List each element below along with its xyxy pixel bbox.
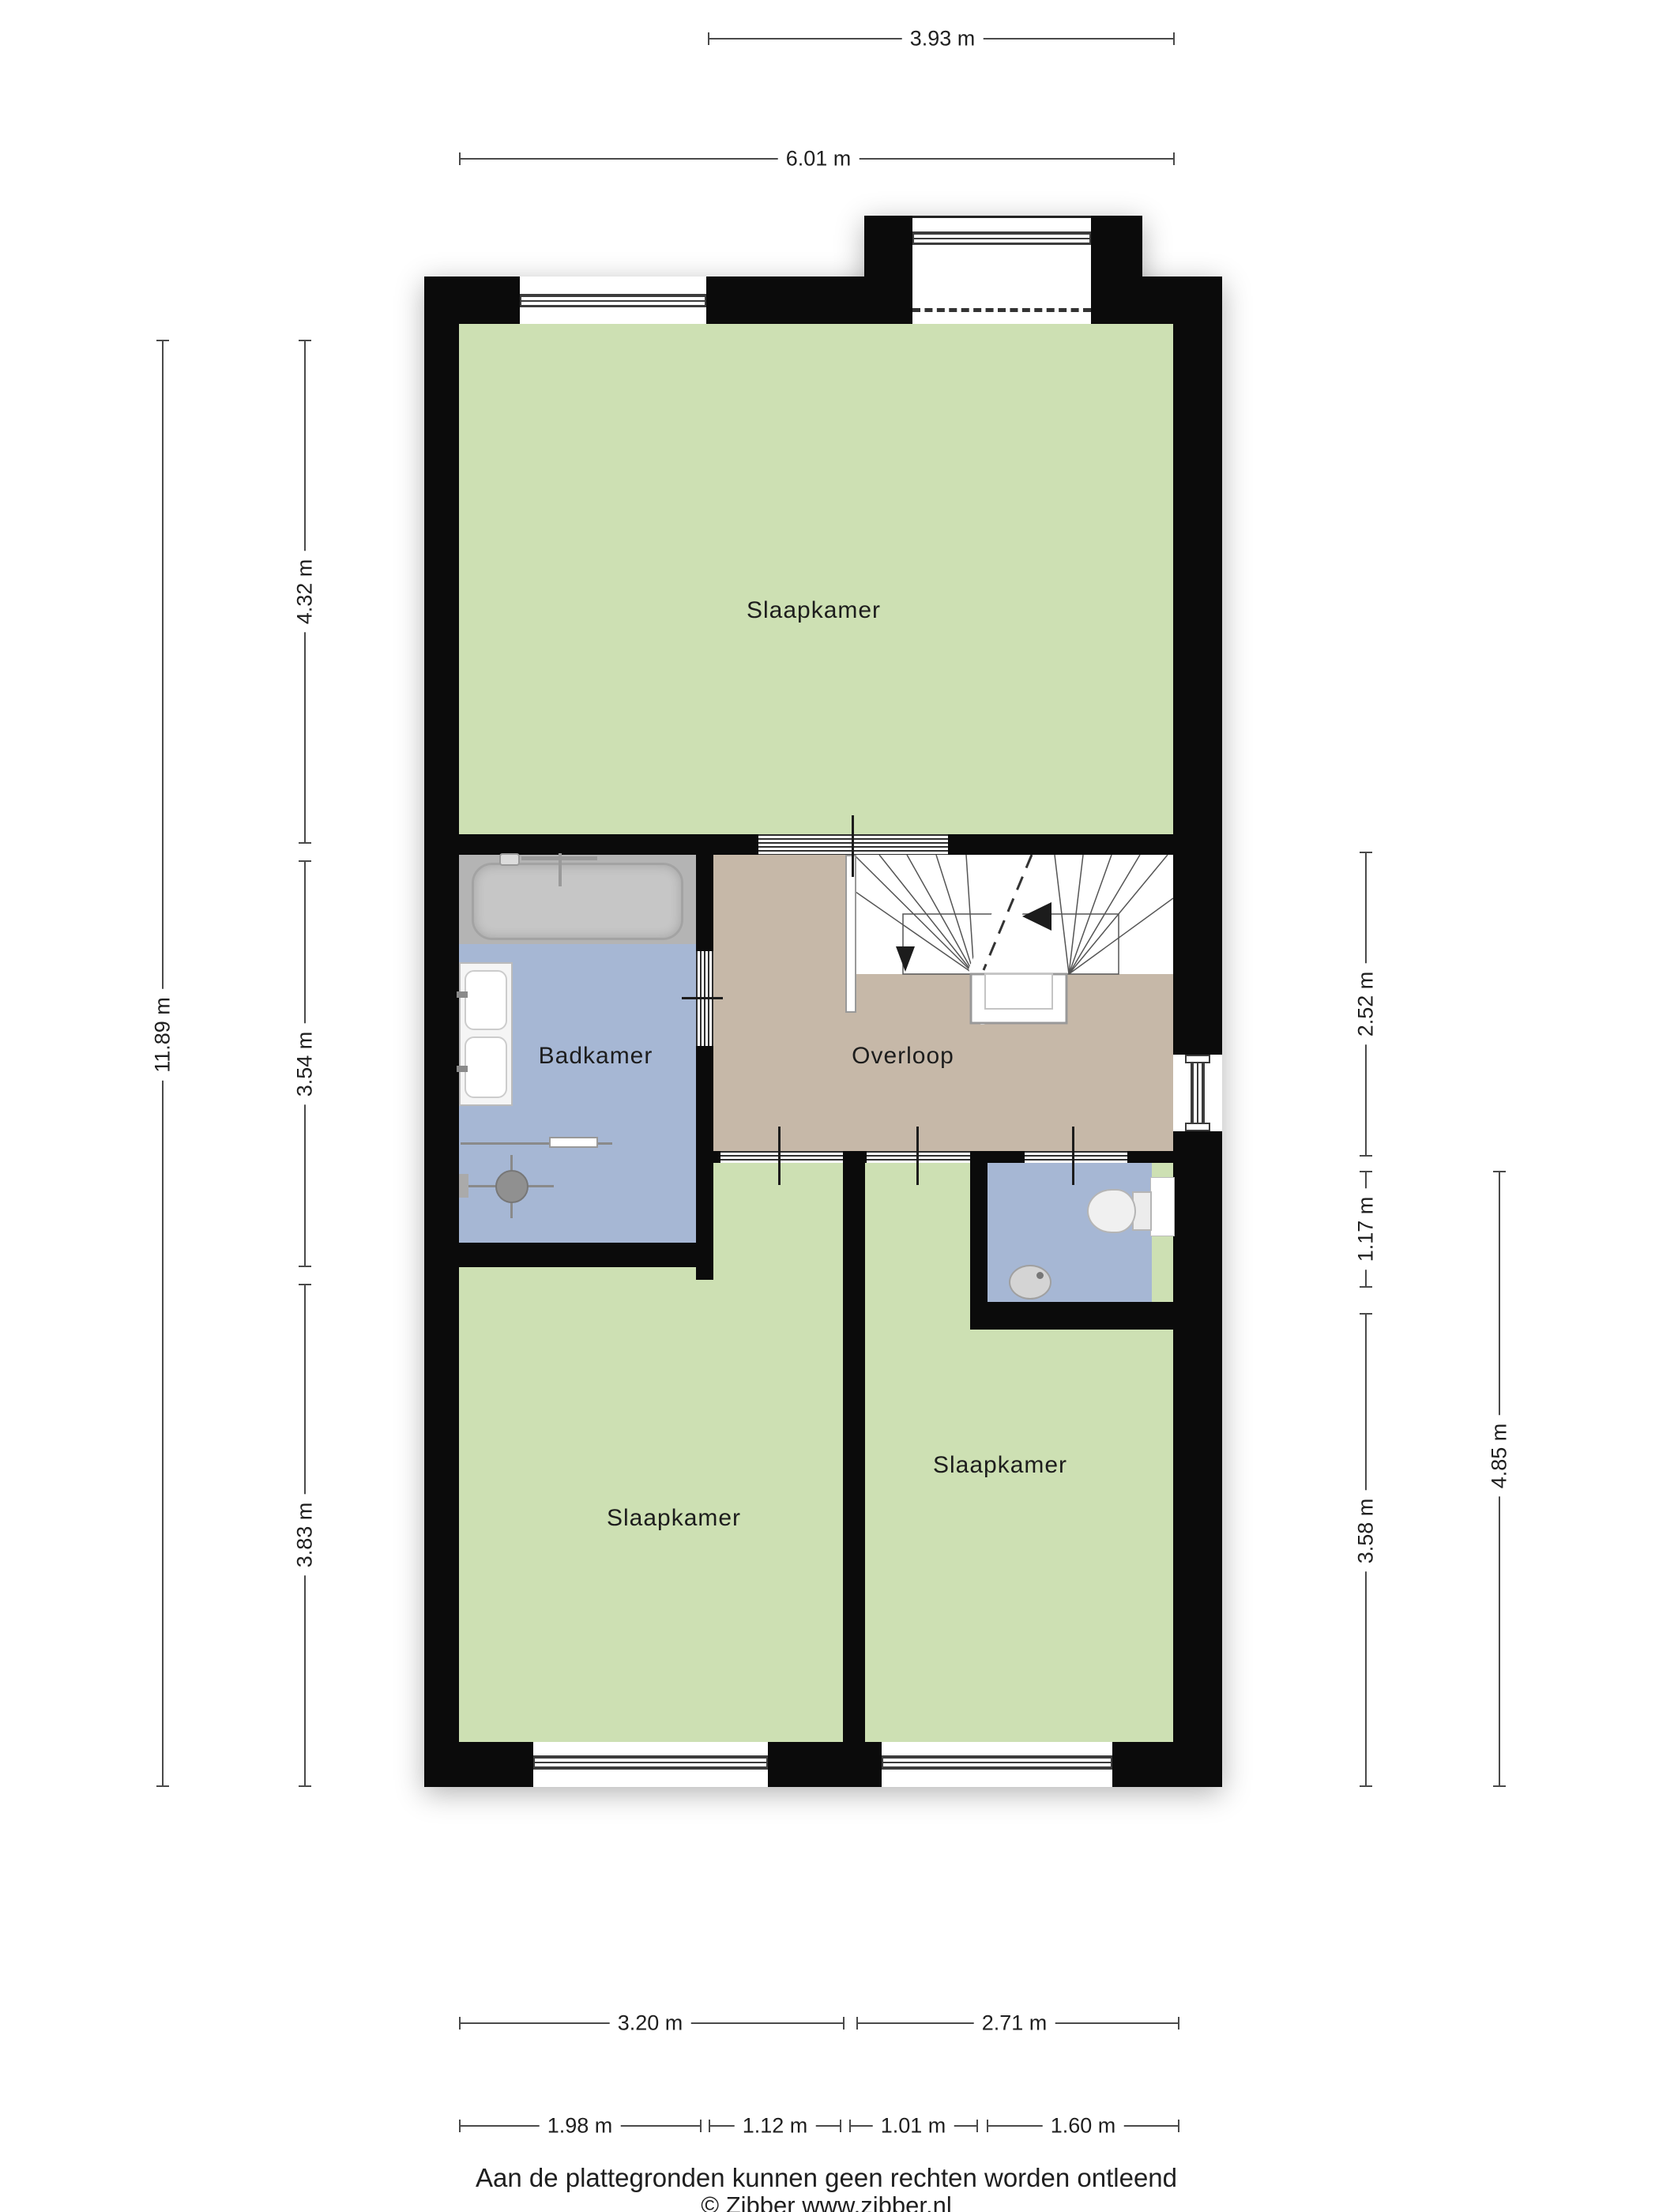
door-toilet — [1025, 1151, 1127, 1163]
dormer-top-edge — [912, 216, 1091, 218]
window-right — [1191, 1055, 1205, 1131]
dim-label: 2.52 m — [1352, 964, 1380, 1045]
label-landing: Overloop — [852, 1043, 954, 1070]
washbasin-faucet-2 — [457, 1066, 468, 1072]
dim-label: 1.12 m — [735, 2112, 816, 2140]
dim-label: 11.89 m — [149, 989, 177, 1081]
dim-bottom-112: 1.12 m — [709, 2125, 841, 2127]
label-bathroom: Badkamer — [539, 1043, 653, 1070]
door-tick-bathroom — [682, 997, 723, 999]
dim-bottom-271: 2.71 m — [856, 2022, 1179, 2024]
dim-right-117: 1.17 m — [1365, 1171, 1367, 1288]
wall-bottom-c — [1112, 1742, 1222, 1787]
dim-left-432: 4.32 m — [304, 340, 306, 844]
toilet-bowl — [1087, 1189, 1136, 1233]
window-bottom-right — [882, 1755, 1112, 1770]
dim-bottom-320: 3.20 m — [459, 2022, 845, 2024]
dormer-threshold-dashed — [912, 308, 1091, 324]
dim-right-358: 3.58 m — [1365, 1313, 1367, 1787]
wall-landing-bottom-c — [970, 1151, 1025, 1163]
dim-bottom-198: 1.98 m — [459, 2125, 702, 2127]
dim-left-383: 3.83 m — [304, 1284, 306, 1787]
wall-top-b — [706, 276, 864, 324]
bathtub-soap-dish — [499, 853, 520, 866]
room-bedroom-top — [459, 324, 1173, 834]
washbasin-faucet-1 — [457, 991, 468, 998]
washbasin-2 — [465, 1036, 507, 1098]
door-tick-bedroom-left — [778, 1127, 781, 1185]
dim-right-252: 2.52 m — [1365, 852, 1367, 1157]
dim-top-393: 3.93 m — [708, 38, 1175, 39]
window-right-sill-top — [1185, 1055, 1210, 1063]
wall-landing-bottom-a — [713, 1151, 720, 1163]
wall-bottom-a — [424, 1742, 533, 1787]
door-tick-bedroom-right — [916, 1127, 919, 1185]
label-bedroom-left: Slaapkamer — [607, 1505, 741, 1532]
wall-bedroom-divider — [843, 1163, 865, 1742]
door-tick-toilet — [1072, 1127, 1074, 1185]
dim-left-1189: 11.89 m — [162, 340, 164, 1787]
window-right-sill-bottom — [1185, 1123, 1210, 1131]
label-bedroom-right: Slaapkamer — [933, 1452, 1067, 1479]
dim-label: 4.32 m — [292, 551, 319, 633]
dim-left-354: 3.54 m — [304, 860, 306, 1267]
dim-label: 4.85 m — [1486, 1416, 1514, 1497]
footer-copyright: © Zibber www.zibber.nl — [701, 2191, 951, 2212]
dim-bottom-101: 1.01 m — [849, 2125, 978, 2127]
dormer-window — [912, 231, 1091, 245]
dim-label: 3.20 m — [610, 2010, 691, 2037]
towel-rail-bracket — [549, 1137, 598, 1148]
toilet-sink-faucet — [1036, 1272, 1044, 1279]
window-top — [520, 294, 706, 307]
wall-bottom-b — [768, 1742, 882, 1787]
door-bedroom-left — [720, 1151, 843, 1163]
dim-right-485: 4.85 m — [1499, 1171, 1500, 1787]
dim-label: 1.17 m — [1352, 1189, 1380, 1270]
wall-top-a — [424, 276, 520, 324]
wall-bathroom-bottom — [424, 1243, 713, 1267]
stair-railing — [845, 855, 856, 1013]
dim-label: 1.98 m — [540, 2112, 621, 2140]
wall-landing-bottom-b — [843, 1151, 867, 1163]
dim-label: 3.93 m — [902, 25, 984, 53]
wall-landing-bottom-d — [1127, 1151, 1173, 1163]
wall-toilet-bottom — [970, 1302, 1173, 1330]
toilet-door-leaf — [1150, 1177, 1175, 1236]
dim-label: 3.54 m — [292, 1024, 319, 1105]
wall-bathroom-landing — [696, 855, 713, 1280]
toilet-sink — [1009, 1265, 1051, 1300]
wall-left — [424, 276, 459, 1787]
dormer-wall-right — [1091, 216, 1142, 324]
washbasin-1 — [465, 970, 507, 1030]
door-tick-bedroom-top — [852, 815, 854, 877]
dim-label: 3.58 m — [1352, 1491, 1380, 1572]
shower-head — [495, 1170, 529, 1203]
wall-right — [1173, 276, 1222, 1787]
window-bottom-left — [533, 1755, 768, 1770]
dim-bottom-160: 1.60 m — [987, 2125, 1179, 2127]
dim-label: 1.01 m — [873, 2112, 954, 2140]
dormer-wall-left — [864, 216, 912, 324]
floorplan-canvas: Slaapkamer Badkamer Overloop Slaapkamer … — [0, 0, 1659, 2212]
shower-mixer — [459, 1174, 468, 1198]
dim-top-601: 6.01 m — [459, 158, 1175, 160]
bathtub — [472, 863, 683, 940]
dim-label: 2.71 m — [974, 2010, 1055, 2037]
dim-label: 6.01 m — [778, 145, 860, 173]
bathtub-faucet-bar — [521, 856, 597, 860]
footer-disclaimer: Aan de plattegronden kunnen geen rechten… — [476, 2163, 1177, 2193]
staircase — [848, 855, 1173, 1025]
dim-label: 1.60 m — [1043, 2112, 1124, 2140]
wall-top-c — [1142, 276, 1222, 324]
dim-label: 3.83 m — [292, 1495, 319, 1576]
label-bedroom-top: Slaapkamer — [747, 597, 881, 624]
